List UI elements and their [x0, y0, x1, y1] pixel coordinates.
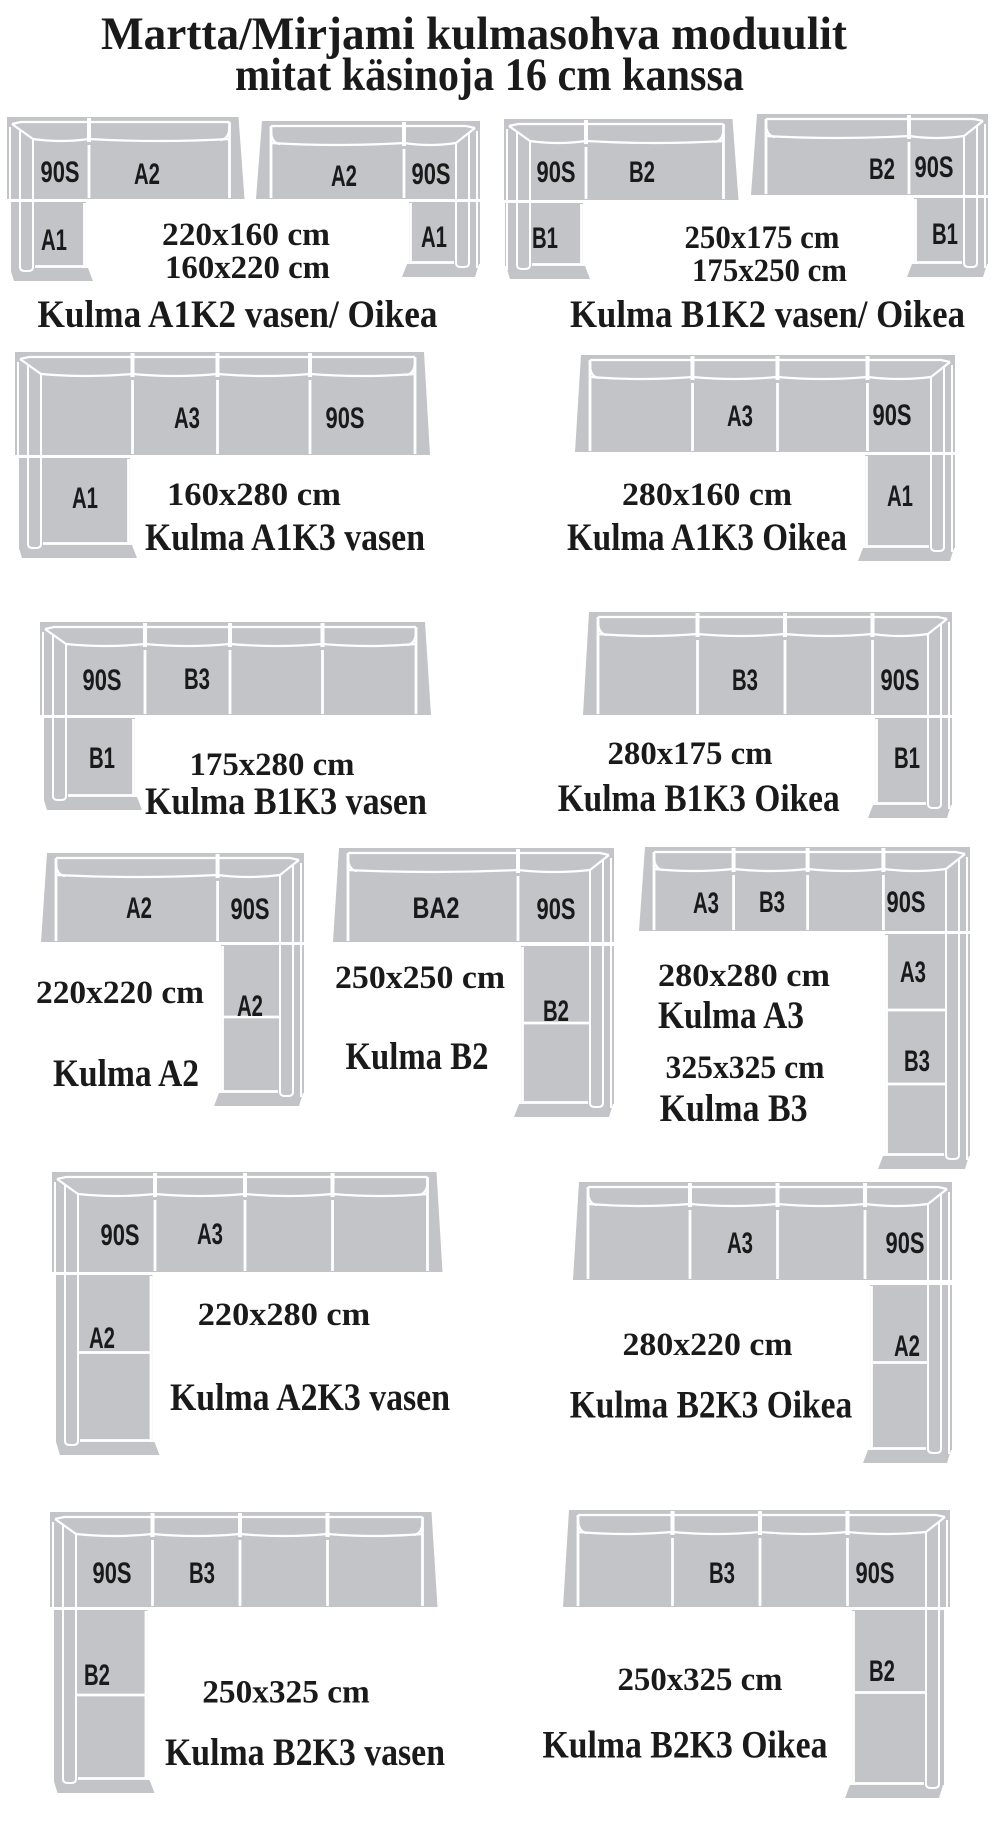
svg-text:B2: B2: [629, 156, 655, 189]
svg-text:90S: 90S: [412, 158, 451, 191]
svg-text:B3: B3: [184, 663, 210, 696]
svg-text:B3: B3: [904, 1045, 930, 1078]
svg-text:A3: A3: [693, 887, 719, 920]
svg-text:B3: B3: [732, 664, 758, 697]
svg-text:175x280 cm: 175x280 cm: [190, 747, 355, 783]
svg-text:A2: A2: [134, 158, 160, 191]
svg-text:B3: B3: [759, 886, 785, 919]
svg-text:90S: 90S: [537, 893, 576, 926]
svg-text:Kulma B1K2 vasen/ Oikea: Kulma B1K2 vasen/ Oikea: [570, 293, 965, 336]
svg-text:90S: 90S: [886, 1227, 925, 1260]
svg-text:A3: A3: [197, 1218, 223, 1251]
svg-text:Kulma B1K3 vasen: Kulma B1K3 vasen: [145, 780, 427, 823]
svg-text:A2: A2: [126, 892, 152, 925]
svg-text:B2: B2: [84, 1659, 110, 1692]
svg-text:90S: 90S: [101, 1219, 140, 1252]
svg-text:A3: A3: [174, 402, 200, 435]
svg-text:90S: 90S: [231, 893, 270, 926]
svg-text:Kulma A1K2 vasen/ Oikea: Kulma A1K2 vasen/ Oikea: [38, 293, 438, 336]
svg-text:90S: 90S: [41, 156, 80, 189]
svg-text:Kulma B2: Kulma B2: [346, 1035, 489, 1078]
svg-text:A1: A1: [887, 480, 913, 513]
svg-text:90S: 90S: [887, 886, 926, 919]
svg-text:A3: A3: [900, 956, 926, 989]
svg-text:B1: B1: [89, 742, 115, 775]
svg-text:B1: B1: [532, 222, 558, 255]
svg-text:B2: B2: [869, 1655, 895, 1688]
svg-text:280x280 cm: 280x280 cm: [658, 958, 830, 994]
svg-text:B3: B3: [709, 1557, 735, 1590]
svg-text:90S: 90S: [915, 151, 954, 184]
svg-text:220x160 cm: 220x160 cm: [162, 217, 330, 253]
svg-text:A2: A2: [894, 1330, 920, 1363]
svg-text:280x220 cm: 280x220 cm: [623, 1327, 793, 1363]
svg-text:250x325 cm: 250x325 cm: [202, 1675, 370, 1711]
svg-text:Kulma A2K3 vasen: Kulma A2K3 vasen: [170, 1376, 450, 1419]
svg-text:A2: A2: [237, 990, 263, 1023]
svg-text:Kulma B1K3 Oikea: Kulma B1K3 Oikea: [558, 777, 840, 820]
svg-text:B1: B1: [932, 218, 958, 251]
svg-text:250x250 cm: 250x250 cm: [335, 960, 505, 996]
svg-text:B2: B2: [543, 995, 569, 1028]
svg-text:B1: B1: [894, 742, 920, 775]
svg-text:90S: 90S: [881, 664, 920, 697]
svg-text:A3: A3: [727, 400, 753, 433]
svg-text:220x280 cm: 220x280 cm: [198, 1297, 371, 1333]
svg-text:Kulma A2: Kulma A2: [53, 1052, 199, 1095]
svg-text:160x220 cm: 160x220 cm: [165, 250, 330, 286]
svg-text:A1: A1: [421, 221, 447, 254]
svg-text:B3: B3: [189, 1557, 215, 1590]
svg-text:160x280 cm: 160x280 cm: [167, 477, 341, 513]
svg-text:175x250 cm: 175x250 cm: [692, 253, 847, 289]
svg-text:A2: A2: [331, 160, 357, 193]
svg-text:BA2: BA2: [413, 892, 460, 925]
svg-text:Kulma B2K3 Oikea: Kulma B2K3 Oikea: [570, 1384, 853, 1427]
svg-text:Kulma B3: Kulma B3: [660, 1087, 808, 1130]
svg-text:325x325 cm: 325x325 cm: [666, 1050, 825, 1086]
svg-text:280x175 cm: 280x175 cm: [608, 736, 773, 772]
svg-text:90S: 90S: [856, 1557, 895, 1590]
svg-text:Kulma A1K3 Oikea: Kulma A1K3 Oikea: [567, 516, 847, 559]
svg-text:Kulma A1K3 vasen: Kulma A1K3 vasen: [145, 516, 425, 559]
svg-text:90S: 90S: [326, 402, 365, 435]
svg-text:220x220 cm: 220x220 cm: [36, 975, 204, 1011]
svg-text:mitat käsinoja 16 cm kanssa: mitat käsinoja 16 cm kanssa: [235, 49, 744, 101]
svg-text:Kulma B2K3 vasen: Kulma B2K3 vasen: [165, 1731, 445, 1774]
svg-text:90S: 90S: [537, 156, 576, 189]
svg-text:Kulma B2K3 Oikea: Kulma B2K3 Oikea: [543, 1724, 828, 1767]
svg-text:280x160 cm: 280x160 cm: [622, 477, 792, 513]
svg-text:A3: A3: [727, 1227, 753, 1260]
svg-text:Kulma A3: Kulma A3: [658, 994, 804, 1037]
svg-text:B2: B2: [869, 153, 895, 186]
svg-text:90S: 90S: [873, 399, 912, 432]
svg-text:A2: A2: [89, 1322, 115, 1355]
svg-text:90S: 90S: [83, 664, 122, 697]
svg-text:250x175 cm: 250x175 cm: [685, 220, 840, 256]
svg-text:A1: A1: [72, 482, 98, 515]
svg-text:A1: A1: [41, 224, 67, 257]
svg-text:90S: 90S: [93, 1557, 132, 1590]
svg-text:250x325 cm: 250x325 cm: [618, 1662, 783, 1698]
